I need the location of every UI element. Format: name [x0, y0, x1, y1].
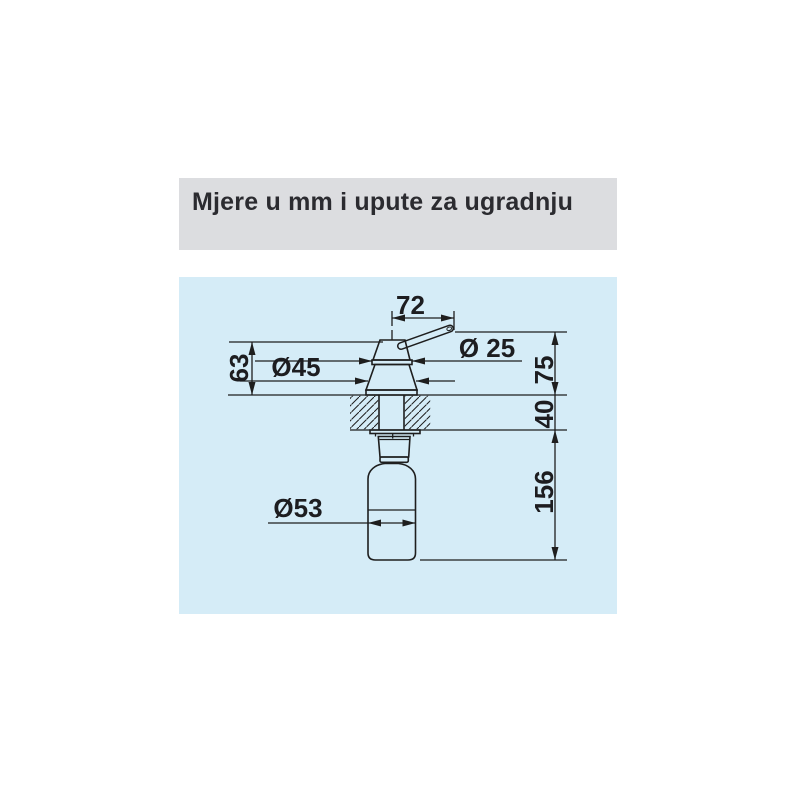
- dimension-head-height: 63: [224, 342, 256, 395]
- installation-drawing-panel: 72 Ø 25 Ø45 63: [179, 277, 617, 614]
- countertop-hatch: [350, 396, 430, 429]
- dimension-head-height-label: 63: [224, 354, 254, 383]
- dimension-spout-reach-label: 72: [396, 290, 425, 320]
- dimension-height-above-counter-label: 75: [529, 356, 559, 385]
- dimension-head-diameter: Ø45: [240, 352, 455, 385]
- dimension-depth-below-counter-label: 156: [529, 470, 559, 513]
- locking-nut: [370, 430, 420, 462]
- dimension-spout-diameter-label: Ø 25: [459, 333, 515, 363]
- dimension-head-diameter-label: Ø45: [271, 352, 320, 382]
- spout-lever: [401, 326, 452, 346]
- section-header: Mjere u mm i upute za ugradnju: [179, 178, 617, 250]
- section-title: Mjere u mm i upute za ugradnju: [179, 178, 617, 217]
- mounting-shaft: [379, 395, 404, 430]
- dimension-counter-thickness-label: 40: [529, 400, 559, 429]
- page: Mjere u mm i upute za ugradnju: [0, 0, 800, 800]
- pump-head: [366, 340, 417, 395]
- soap-bottle: [368, 464, 416, 561]
- soap-dispenser-dimension-drawing: 72 Ø 25 Ø45 63: [179, 277, 617, 614]
- dimension-right-column: 75 40 156: [529, 332, 559, 560]
- dimension-bottle-diameter-label: Ø53: [273, 493, 322, 523]
